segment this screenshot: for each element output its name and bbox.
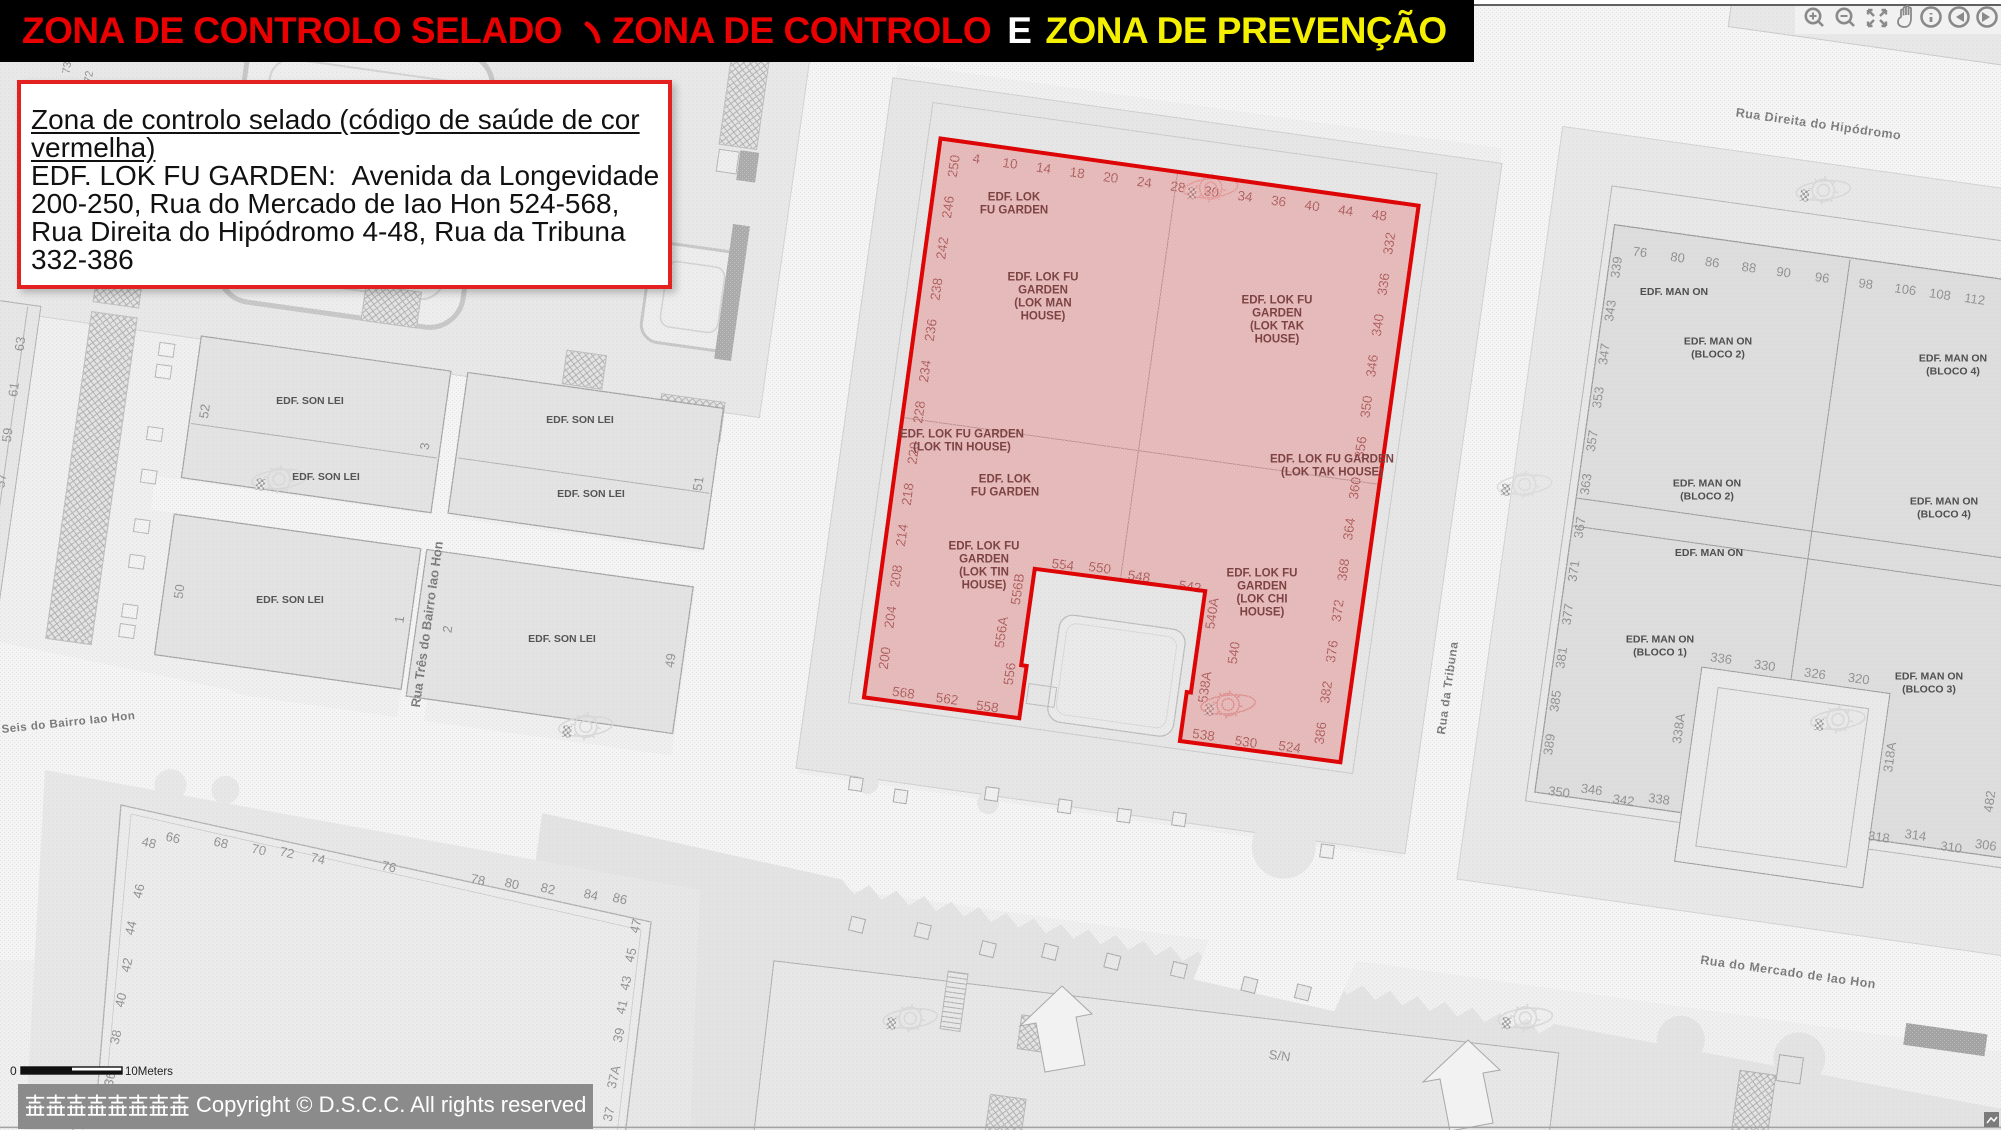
svg-text:(BLOCO 4): (BLOCO 4) <box>1926 366 1980 378</box>
svg-text:10Meters: 10Meters <box>125 1066 173 1078</box>
svg-text:GARDEN: GARDEN <box>1018 285 1068 297</box>
svg-text:EDF. MAN ON: EDF. MAN ON <box>1640 286 1708 298</box>
svg-text:EDF. MAN ON: EDF. MAN ON <box>1684 336 1752 348</box>
svg-text:(LOK TIN: (LOK TIN <box>959 567 1009 579</box>
svg-text:EDF. LOK: EDF. LOK <box>979 474 1032 486</box>
svg-text:(BLOCO 3): (BLOCO 3) <box>1902 684 1956 696</box>
svg-text:(LOK CHI: (LOK CHI <box>1236 594 1287 606</box>
svg-text:HOUSE): HOUSE) <box>1255 334 1300 346</box>
svg-text:EDF. MAN ON: EDF. MAN ON <box>1919 353 1987 365</box>
svg-text:0: 0 <box>10 1064 17 1078</box>
svg-text:(LOK TAK: (LOK TAK <box>1250 321 1305 333</box>
svg-text:(LOK TAK HOUSE): (LOK TAK HOUSE) <box>1281 467 1383 479</box>
svg-text:EDF. SON LEI: EDF. SON LEI <box>276 395 344 407</box>
svg-text:EDF. LOK FU: EDF. LOK FU <box>1008 272 1079 284</box>
svg-text:EDF. LOK FU: EDF. LOK FU <box>1242 295 1313 307</box>
svg-text:GARDEN: GARDEN <box>1252 308 1302 320</box>
svg-text:EDF. LOK FU: EDF. LOK FU <box>949 541 1020 553</box>
svg-text:FU GARDEN: FU GARDEN <box>980 205 1048 217</box>
svg-text:EDF. SON LEI: EDF. SON LEI <box>292 471 360 483</box>
svg-text:HOUSE): HOUSE) <box>1240 607 1285 619</box>
svg-text:EDF. LOK FU GARDEN: EDF. LOK FU GARDEN <box>900 429 1024 441</box>
svg-text:(BLOCO 2): (BLOCO 2) <box>1691 349 1745 361</box>
svg-text:EDF. MAN ON: EDF. MAN ON <box>1673 478 1741 490</box>
svg-text:EDF. SON LEI: EDF. SON LEI <box>528 633 596 645</box>
svg-text:EDF. SON LEI: EDF. SON LEI <box>256 594 324 606</box>
svg-text:EDF. MAN ON: EDF. MAN ON <box>1675 547 1743 559</box>
svg-text:EDF. SON LEI: EDF. SON LEI <box>557 488 625 500</box>
svg-text:(LOK TIN HOUSE): (LOK TIN HOUSE) <box>913 442 1011 454</box>
svg-text:EDF. MAN ON: EDF. MAN ON <box>1910 496 1978 508</box>
svg-text:EDF. LOK FU GARDEN: EDF. LOK FU GARDEN <box>1270 454 1394 466</box>
svg-text:GARDEN: GARDEN <box>959 554 1009 566</box>
svg-text:(BLOCO 1): (BLOCO 1) <box>1633 647 1687 659</box>
svg-text:(BLOCO 2): (BLOCO 2) <box>1680 491 1734 503</box>
svg-text:(BLOCO 4): (BLOCO 4) <box>1917 509 1971 521</box>
svg-text:GARDEN: GARDEN <box>1237 581 1287 593</box>
svg-text:HOUSE): HOUSE) <box>962 580 1007 592</box>
svg-text:EDF. MAN ON: EDF. MAN ON <box>1626 634 1694 646</box>
svg-text:(LOK MAN: (LOK MAN <box>1014 298 1072 310</box>
svg-text:EDF. LOK FU: EDF. LOK FU <box>1227 568 1298 580</box>
svg-text:HOUSE): HOUSE) <box>1021 311 1066 323</box>
svg-text:FU GARDEN: FU GARDEN <box>971 487 1039 499</box>
svg-text:EDF. LOK: EDF. LOK <box>988 192 1041 204</box>
svg-text:EDF. SON LEI: EDF. SON LEI <box>546 414 614 426</box>
svg-text:EDF. MAN ON: EDF. MAN ON <box>1895 671 1963 683</box>
